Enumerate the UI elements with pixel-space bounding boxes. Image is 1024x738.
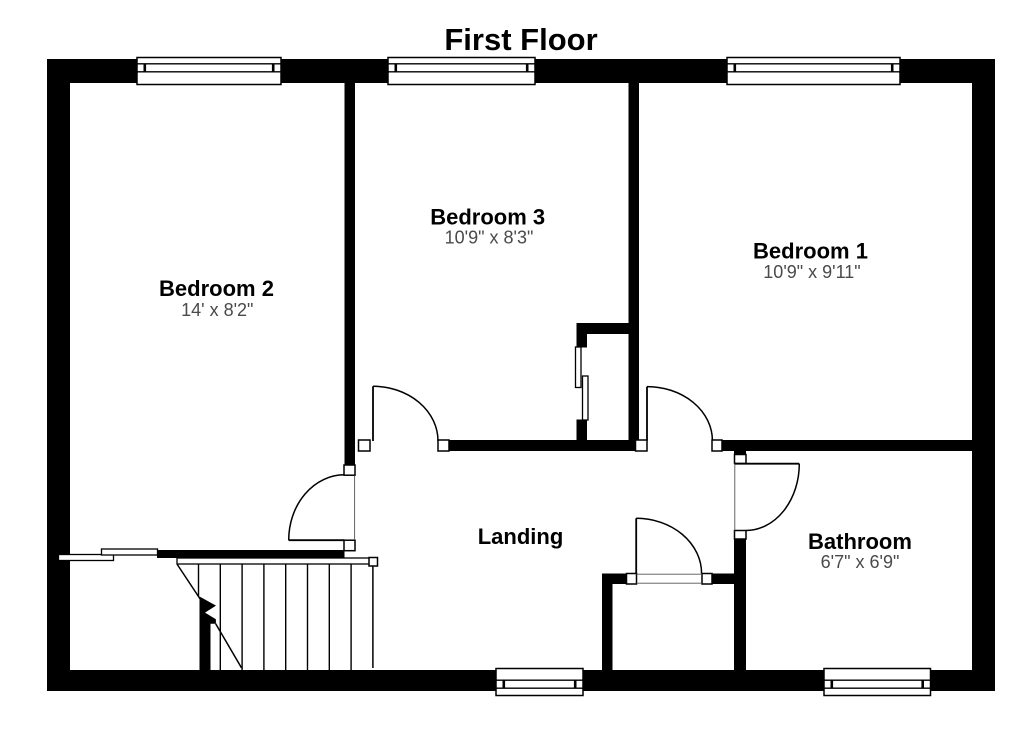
svg-text:Bathroom: Bathroom bbox=[808, 529, 912, 554]
svg-text:10'9" x 8'3": 10'9" x 8'3" bbox=[445, 227, 534, 247]
svg-text:Bedroom 3: Bedroom 3 bbox=[430, 205, 545, 230]
svg-text:10'9" x 9'11": 10'9" x 9'11" bbox=[763, 262, 860, 282]
svg-text:Bedroom 1: Bedroom 1 bbox=[753, 238, 868, 263]
svg-text:Bedroom 2: Bedroom 2 bbox=[159, 276, 274, 301]
svg-text:6'7" x 6'9": 6'7" x 6'9" bbox=[821, 552, 900, 572]
svg-text:14' x 8'2": 14' x 8'2" bbox=[181, 300, 253, 320]
svg-text:Landing: Landing bbox=[478, 524, 564, 549]
svg-text:First Floor: First Floor bbox=[444, 22, 597, 57]
